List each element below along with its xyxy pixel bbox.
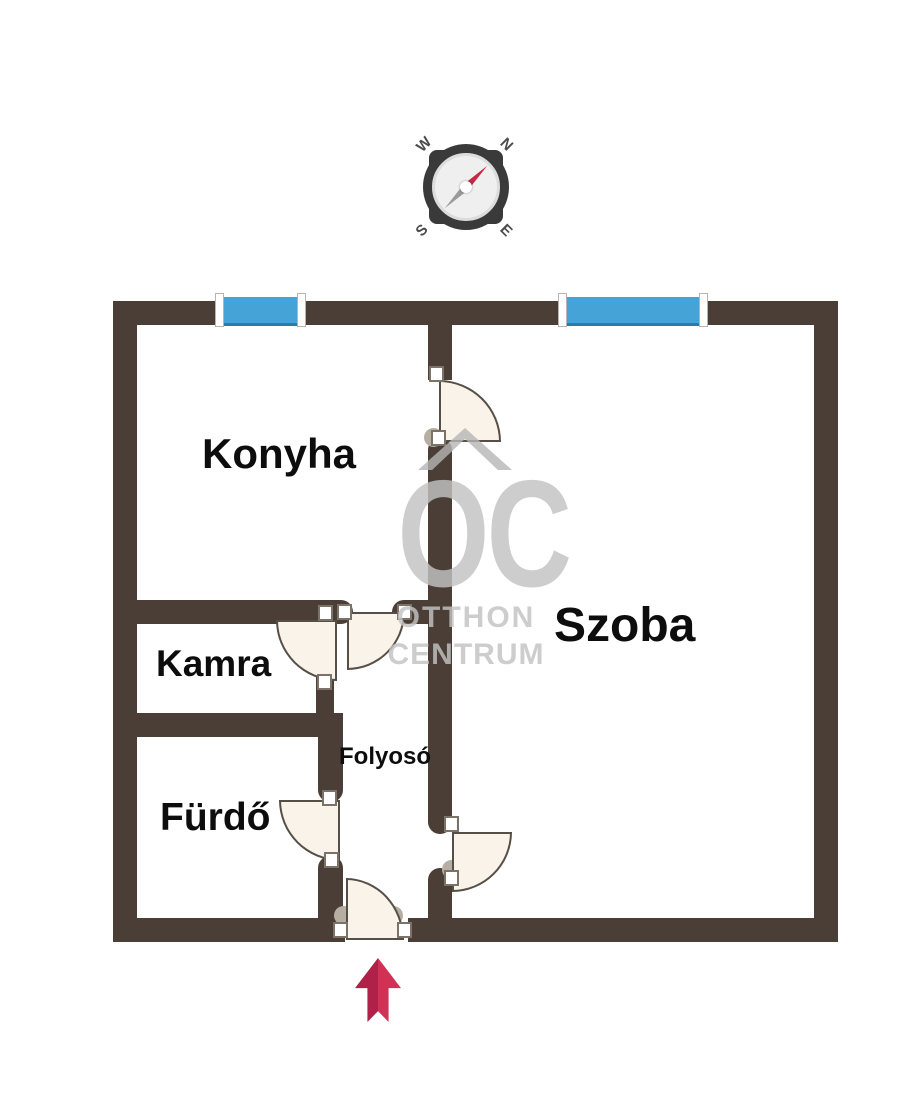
window-konyha-cap-right <box>297 293 306 327</box>
compass-hub <box>460 181 472 193</box>
floor-plan: W N S E Konyha Szoba <box>0 0 920 1100</box>
jamb-entrance-right <box>397 922 412 938</box>
jamb-furdo-bottom <box>324 852 339 868</box>
jamb-konyha-szoba-bottom <box>431 430 446 446</box>
wall-exterior-right <box>814 301 838 942</box>
wall-exterior-bottom-left <box>113 918 345 942</box>
room-label-furdo: Fürdő <box>160 796 270 840</box>
jamb-szoba-bottom <box>444 870 459 886</box>
jamb-furdo-top <box>322 790 337 806</box>
wall-kamra-furdo <box>137 713 343 737</box>
jamb-entrance-left <box>333 922 348 938</box>
jamb-konyha-folyoso-left <box>337 604 352 620</box>
room-label-folyoso: Folyosó <box>339 743 431 771</box>
jamb-konyha-szoba-top <box>429 366 444 382</box>
window-szoba-cap-left <box>558 293 567 327</box>
compass-east-label: E <box>496 221 515 240</box>
door-arc-entrance <box>346 878 404 940</box>
watermark-line1: OTTHON <box>366 601 566 635</box>
window-szoba <box>565 297 700 326</box>
room-label-kamra: Kamra <box>156 643 271 685</box>
jamb-kamra-bottom <box>317 674 332 690</box>
door-arc-szoba <box>452 832 512 892</box>
jamb-szoba-top <box>444 816 459 832</box>
compass-south-label: S <box>412 221 431 240</box>
window-konyha <box>222 297 298 326</box>
wall-exterior-left <box>113 301 137 942</box>
watermark-initials: OC <box>397 458 534 610</box>
jamb-kamra-top <box>318 605 333 621</box>
wall-exterior-bottom-right <box>408 918 838 942</box>
entrance-arrow-icon <box>355 958 401 1022</box>
compass-rose: W N S E <box>409 130 523 244</box>
window-szoba-cap-right <box>699 293 708 327</box>
door-arc-kamra <box>276 620 337 681</box>
window-konyha-cap-left <box>215 293 224 327</box>
watermark-line2: CENTRUM <box>366 638 566 672</box>
room-label-szoba: Szoba <box>554 598 695 653</box>
room-label-konyha: Konyha <box>202 430 356 478</box>
